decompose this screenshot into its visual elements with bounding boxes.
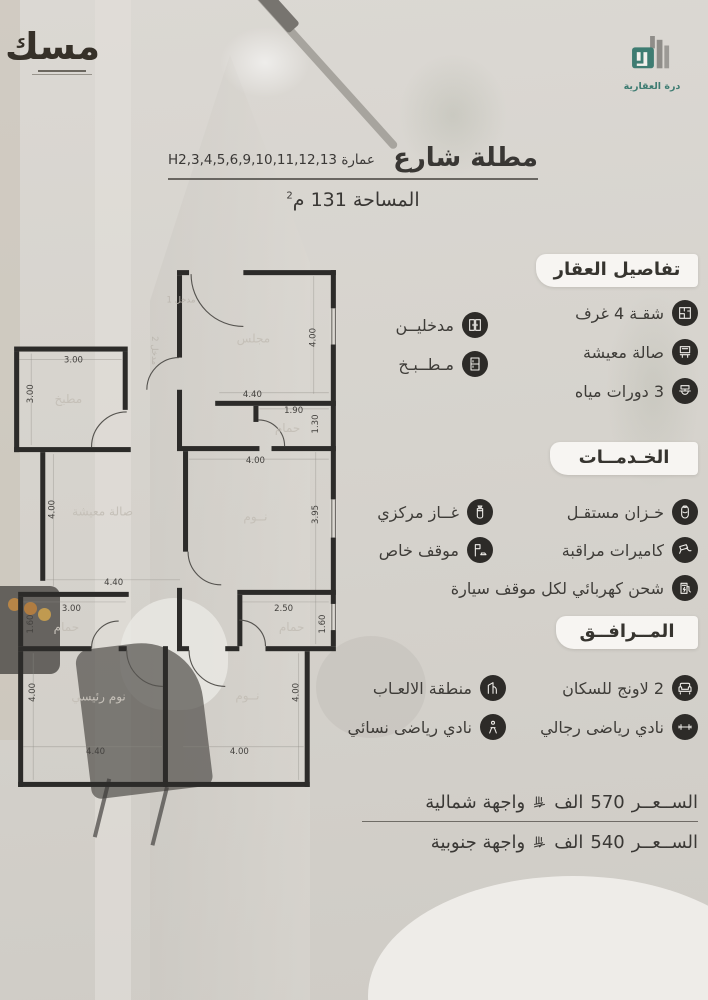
saudi-riyal-icon (532, 795, 547, 810)
list-item-label: غــاز مركزي (377, 503, 459, 522)
mens-gym-icon (672, 714, 698, 740)
list-item-label: شحن كهربائي لكل موقف سيارة (451, 579, 664, 598)
bg-lamp-glow (205, 15, 325, 110)
kitchen-icon (462, 351, 488, 377)
bg-round-table (368, 876, 708, 1000)
dim-living-h: 4.00 (47, 500, 57, 519)
water-tank-icon (672, 499, 698, 525)
room-label-bed-mid: نــوم (243, 509, 267, 524)
list-item-label: صالة معيشة (583, 343, 664, 362)
list-item-label: نادي رياضى نسائي (347, 718, 472, 737)
list-item-cctv: كاميرات مراقبة (543, 537, 698, 563)
price-facade: واجهة جنوبية (431, 832, 525, 853)
residents-lounge-icon (672, 675, 698, 701)
list-item-label: موقف خاص (379, 541, 459, 560)
header-divider (168, 178, 538, 180)
dim-living-w: 4.40 (104, 578, 123, 588)
dim-master-w: 4.40 (86, 747, 105, 757)
womens-gym-icon (480, 714, 506, 740)
list-item-label: منطقة الالعـاب (373, 679, 472, 698)
dim-bath-left-h: 1.60 (26, 615, 36, 634)
building-numbers: عمارة H2,3,4,5,6,9,10,11,12,13 (168, 152, 375, 173)
price-amount: 570 (590, 792, 624, 813)
list-item-womens-gym: نادي رياضى نسائي (328, 714, 506, 740)
price-label: الســعــر (632, 832, 698, 853)
room-label-bed-bottom: نــوم (235, 688, 259, 703)
dim-bath-top-h: 1.30 (311, 414, 321, 433)
list-item-apartment: شقـة 4 غرف (536, 300, 698, 326)
price-divider (362, 821, 698, 822)
price-unit: الف (554, 792, 583, 813)
dim-bed-bottom-h: 4.00 (292, 683, 302, 702)
dim-bed-bottom-w: 4.00 (230, 747, 249, 757)
floor-plan: مجلس مطبخ حمام صالة معيشة نــوم حمام حما… (6, 250, 348, 798)
playground-icon (480, 675, 506, 701)
list-item-label: 2 لاونج للسكان (562, 679, 664, 698)
flyer-header: مطلة شارع عمارة H2,3,4,5,6,9,10,11,12,13… (168, 144, 538, 211)
list-item-label: كاميرات مراقبة (562, 541, 664, 560)
list-item-label: خـزان مستقـل (567, 503, 664, 522)
section-services: الخـدمــات خـزان مستقـل غــاز مركزي كامي… (340, 442, 698, 601)
dim-bath-top-w: 1.90 (284, 406, 303, 416)
entrance-2-label: مدخل 2 (149, 336, 159, 365)
room-label-bath-top: حمام (275, 421, 301, 435)
private-parking-icon (467, 537, 493, 563)
cctv-camera-icon (672, 537, 698, 563)
list-item-private-parking: موقف خاص (345, 537, 493, 563)
dim-bed-mid-h: 3.95 (311, 505, 321, 524)
page-title: مطلة شارع (393, 144, 538, 173)
entrance-1-label: مدخل 1 (167, 295, 196, 305)
misk-logo-underline (38, 70, 86, 72)
list-item-ev-charging: شحن كهربائي لكل موقف سيارة (340, 575, 698, 601)
list-item-label: مدخليــن (395, 316, 454, 335)
room-label-bath-right: حمام (279, 620, 305, 634)
door-entrance-icon (462, 312, 488, 338)
misk-logo: مسك (24, 28, 100, 75)
room-label-bath-left: حمام (54, 620, 80, 634)
dim-majlis-w: 4.40 (243, 390, 262, 400)
durrah-logo-text: درة العقارية (614, 81, 690, 92)
list-item-playground: منطقة الالعـاب (328, 675, 506, 701)
saudi-riyal-icon (532, 835, 547, 850)
list-item-entrances: مدخليــن (333, 312, 488, 338)
durrah-logo-mark-icon (629, 36, 675, 74)
room-label-majlis: مجلس (237, 332, 271, 347)
list-item-label: مـطــبـخ (398, 355, 454, 374)
list-item-central-gas: غــاز مركزي (345, 499, 493, 525)
section-amenities: المــرافــق 2 لاونج للسكان منطقة الالعـا… (326, 616, 698, 740)
price-row-north: الســعــر 570 الف واجهة شمالية (362, 792, 698, 813)
list-item-label: شقـة 4 غرف (575, 304, 664, 323)
property-details-heading: تفاصيل العقار (536, 254, 698, 287)
list-item-water-tank: خـزان مستقـل (543, 499, 698, 525)
area-label: المساحة 131 م2 (168, 189, 538, 211)
price-facade: واجهة شمالية (425, 792, 525, 813)
price-unit: الف (554, 832, 583, 853)
misk-logo-subline (32, 74, 92, 76)
durrah-logo: درة العقارية (614, 36, 690, 92)
living-room-icon (672, 339, 698, 365)
list-item-mens-gym: نادي رياضى رجالي (536, 714, 698, 740)
dim-master-h: 4.00 (28, 683, 38, 702)
dim-bed-mid-w: 4.00 (246, 456, 265, 466)
section-plan-notes: مدخليــن مـطــبـخ (333, 312, 488, 390)
list-item-living-room: صالة معيشة (536, 339, 698, 365)
section-property-details: تفاصيل العقار شقـة 4 غرف صالة معيشة 3 دو… (536, 254, 698, 404)
list-item-label: 3 دورات مياه (575, 382, 664, 401)
room-label-master: نوم رئيسي (71, 689, 125, 704)
list-item-kitchen: مـطــبـخ (333, 351, 488, 377)
services-heading: الخـدمــات (550, 442, 698, 475)
list-item-lounge: 2 لاونج للسكان (536, 675, 698, 701)
amenities-heading: المــرافــق (556, 616, 698, 649)
list-item-bathrooms: 3 دورات مياه (536, 378, 698, 404)
price-label: الســعــر (632, 792, 698, 813)
dim-majlis-h: 4.00 (309, 328, 319, 347)
dim-kitchen-h: 3.00 (26, 384, 36, 403)
gas-cylinder-icon (467, 499, 493, 525)
apartment-plan-icon (672, 300, 698, 326)
flyer-page: مسك درة العقارية مطلة شارع عمارة H2,3,4,… (0, 0, 708, 1000)
list-item-label: نادي رياضى رجالي (540, 718, 664, 737)
misk-logo-text: مسك (24, 28, 100, 67)
price-amount: 540 (590, 832, 624, 853)
price-row-south: الســعــر 540 الف واجهة جنوبية (362, 832, 698, 853)
section-prices: الســعــر 570 الف واجهة شمالية الســعــر… (362, 792, 698, 853)
dim-kitchen-w: 3.00 (64, 356, 83, 366)
bathroom-icon (672, 378, 698, 404)
dim-bath-right-w: 2.50 (274, 604, 293, 614)
dim-bath-left-w: 3.00 (62, 604, 81, 614)
ev-charging-icon (672, 575, 698, 601)
room-label-kitchen: مطبخ (55, 392, 83, 406)
room-label-living: صالة معيشة (72, 504, 133, 518)
